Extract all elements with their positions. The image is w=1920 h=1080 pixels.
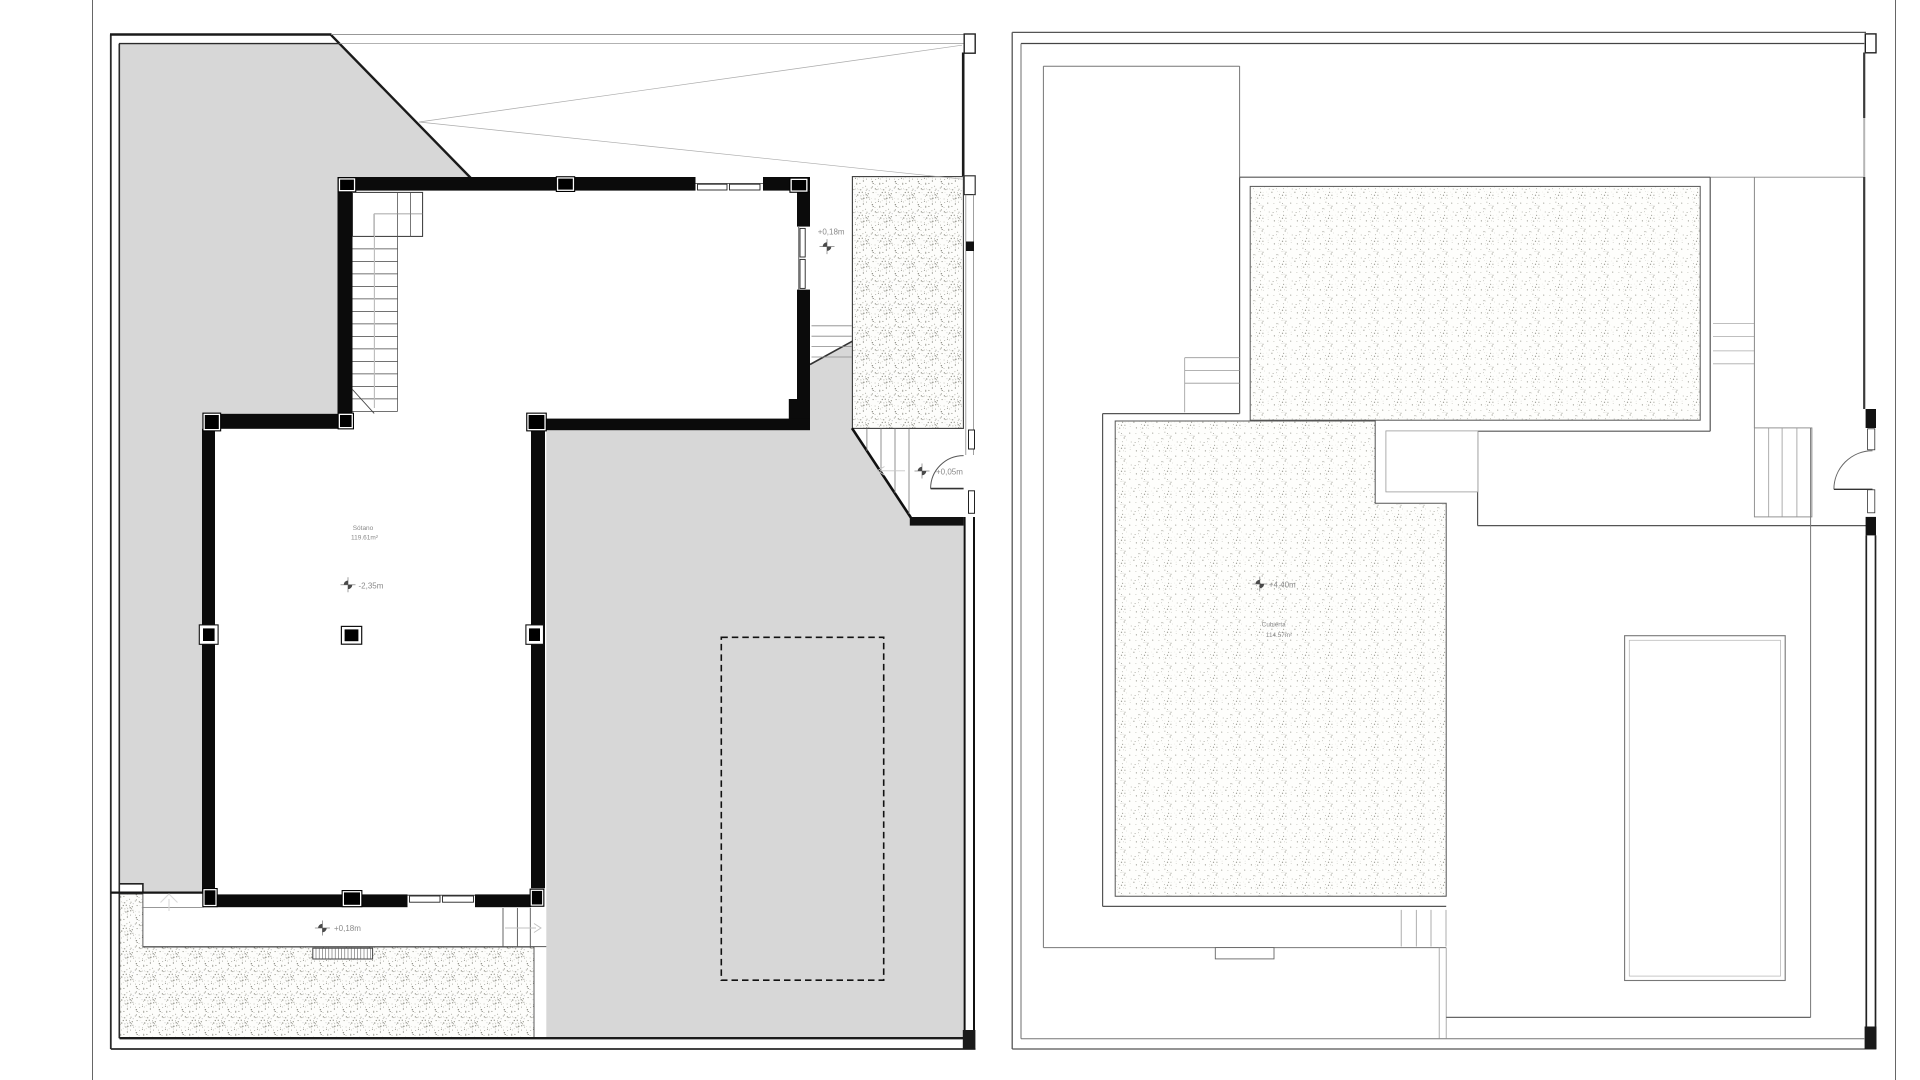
svg-text:+0,18m: +0,18m	[818, 228, 845, 237]
svg-text:Sótano: Sótano	[353, 525, 374, 532]
svg-text:-2,35m: -2,35m	[359, 581, 384, 590]
svg-text:+0,05m: +0,05m	[936, 468, 963, 477]
svg-text:114.57m²: 114.57m²	[1266, 632, 1292, 639]
svg-text:Cubierta: Cubierta	[1262, 621, 1286, 628]
svg-text:119.61m²: 119.61m²	[351, 535, 379, 542]
svg-text:+0,18m: +0,18m	[334, 924, 361, 933]
svg-text:+4,40m: +4,40m	[1269, 581, 1296, 590]
